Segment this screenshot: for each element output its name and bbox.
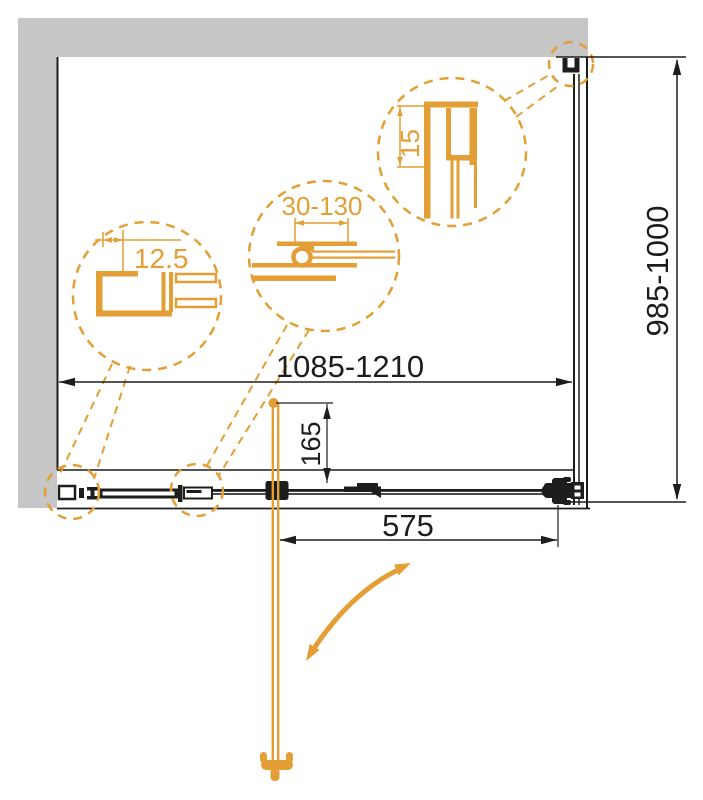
wall-left: [18, 18, 57, 508]
door-open-position: [260, 398, 293, 781]
wall-top: [18, 18, 588, 57]
profile-block: [91, 490, 95, 497]
profile-block: [87, 487, 98, 491]
detail-glass-label: 12.5: [134, 243, 189, 274]
dim-door: 575: [280, 505, 558, 547]
shower-enclosure-plan: 12.5 30-130: [0, 0, 703, 800]
dim-handle-offset-label: 165: [296, 421, 326, 466]
detail-adjust-section: 30-130: [252, 191, 395, 281]
swing-arrow-icon: [306, 563, 411, 661]
track-profiles: [59, 477, 584, 505]
dim-width-label: 1085-1210: [276, 349, 424, 384]
fixed-glass-core: [103, 492, 175, 496]
roller-carriage-mark: [187, 490, 202, 493]
technical-drawing: 12.5 30-130: [0, 0, 703, 800]
hinge-assembly: [542, 477, 585, 505]
door-handle-icon: [260, 752, 293, 781]
dim-width: 1085-1210: [59, 349, 572, 386]
profile-block: [87, 496, 98, 500]
top-wall-bracket: [565, 58, 577, 70]
dim-height-label: 985-1000: [640, 205, 675, 336]
detail-profile-label: 15: [395, 129, 425, 158]
detail-adjust-label: 30-130: [282, 191, 363, 221]
leader-line: [94, 366, 130, 479]
dim-handle-offset: 165: [276, 403, 333, 483]
mid-bracket-top: [357, 483, 378, 488]
mid-bracket-foot: [371, 492, 381, 498]
detail-profile-section: 15: [395, 102, 478, 219]
carriage-stop: [178, 485, 183, 502]
leader-line: [205, 325, 287, 469]
dim-door-label: 575: [382, 508, 434, 543]
adjust-hook: [294, 249, 311, 266]
dim-height: 985-1000: [556, 57, 686, 502]
left-wall-profile: [59, 486, 75, 499]
profile-block: [79, 488, 84, 498]
